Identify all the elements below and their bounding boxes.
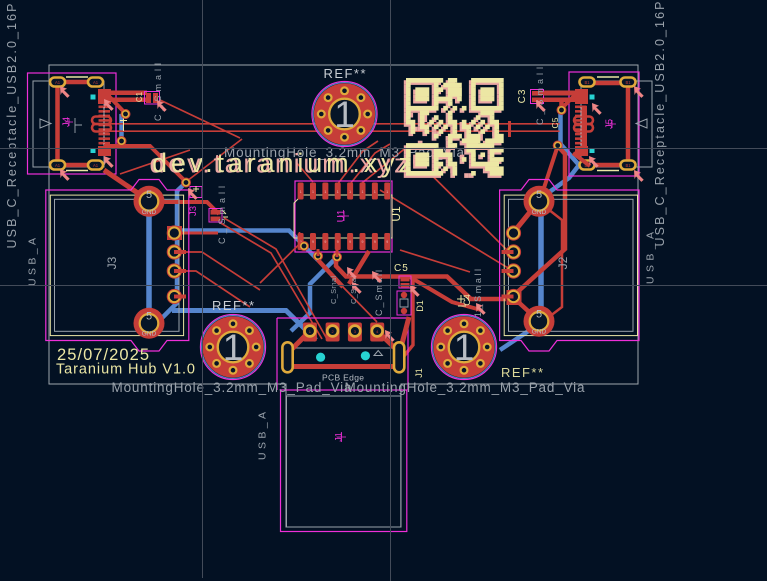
svg-text:USB_A: USB_A <box>27 238 39 286</box>
svg-text:GND: GND <box>142 331 157 338</box>
svg-text:Taranium Hub V1.0: Taranium Hub V1.0 <box>56 362 195 378</box>
svg-text:9: 9 <box>324 240 326 244</box>
svg-text:B1: B1 <box>625 80 631 85</box>
svg-text:9: 9 <box>349 240 351 244</box>
svg-text:1: 1 <box>334 94 355 135</box>
svg-text:1: 1 <box>337 190 339 194</box>
svg-text:C5: C5 <box>550 117 560 128</box>
svg-text:J2: J2 <box>556 256 570 269</box>
svg-text:1: 1 <box>454 327 475 368</box>
svg-text:1: 1 <box>386 190 388 194</box>
svg-text:9: 9 <box>374 240 376 244</box>
svg-text:C4: C4 <box>462 294 472 306</box>
svg-text:9: 9 <box>337 240 339 244</box>
svg-text:9: 9 <box>362 240 364 244</box>
svg-text:1: 1 <box>324 190 326 194</box>
svg-text:GND: GND <box>532 209 547 216</box>
svg-text:A1: A1 <box>55 163 61 168</box>
svg-text:B1: B1 <box>584 80 590 85</box>
svg-text:A1: A1 <box>93 80 99 85</box>
svg-text:A1: A1 <box>55 80 61 85</box>
svg-text:C1: C1 <box>135 91 144 102</box>
svg-text:GND: GND <box>142 209 157 216</box>
svg-text:1: 1 <box>223 327 244 368</box>
svg-text:USB_A: USB_A <box>256 412 268 460</box>
svg-text:1: 1 <box>312 190 314 194</box>
svg-text:1: 1 <box>362 190 364 194</box>
svg-text:MountingHole_3.2mm_M3_Pad_Via: MountingHole_3.2mm_M3_Pad_Via <box>112 380 352 395</box>
svg-text:U1: U1 <box>389 206 403 222</box>
svg-text:C3: C3 <box>517 89 528 104</box>
svg-text:C5: C5 <box>394 263 409 274</box>
svg-text:5: 5 <box>146 189 152 201</box>
svg-text:9: 9 <box>386 240 388 244</box>
svg-text:J3: J3 <box>105 256 119 269</box>
svg-text:B1: B1 <box>625 163 631 168</box>
svg-text:5: 5 <box>536 189 542 201</box>
svg-text:J1: J1 <box>414 368 424 378</box>
svg-text:J3: J3 <box>188 206 199 216</box>
svg-text:1: 1 <box>374 190 376 194</box>
svg-text:5: 5 <box>146 311 152 323</box>
svg-text:1: 1 <box>300 190 302 194</box>
svg-text:C_Smal: C_Smal <box>329 276 338 304</box>
svg-text:5: 5 <box>536 309 542 321</box>
svg-text:GND: GND <box>532 329 547 336</box>
svg-text:9: 9 <box>312 240 314 244</box>
svg-text:dev.taranium.xyz: dev.taranium.xyz <box>152 148 412 178</box>
svg-text:D1: D1 <box>415 300 425 312</box>
svg-text:MountingHole_3.2mm_M3_Pad_Via: MountingHole_3.2mm_M3_Pad_Via <box>345 380 585 395</box>
svg-text:A1: A1 <box>93 163 99 168</box>
svg-text:1: 1 <box>349 190 351 194</box>
